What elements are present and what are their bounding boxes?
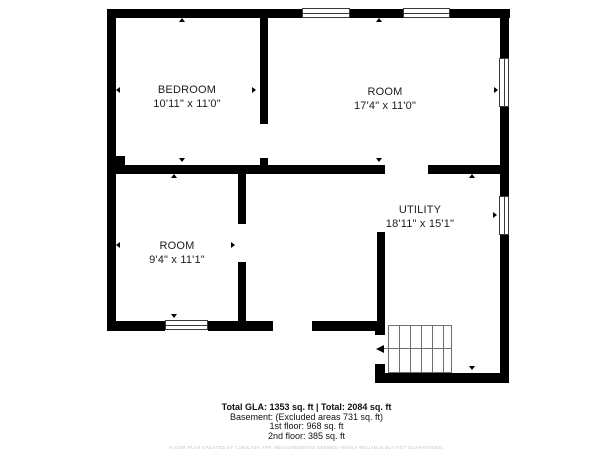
wall-stair-stub-bottom [375,364,385,383]
room-dimensions: 10'11" x 11'0" [153,98,221,112]
measure-arrow-icon [179,158,185,162]
room-label-utility: UTILITY 18'11" x 15'1" [386,204,454,231]
room-label-room-upper: ROOM 17'4" x 11'0" [354,86,416,113]
window-bottom-1 [165,320,208,330]
wall-room3-right-lower [238,262,246,321]
room-name: UTILITY [386,204,454,218]
wall-middle-notch [116,156,125,166]
staircase-midline [383,348,452,349]
wall-stair-stub-top [375,331,385,335]
room-dimensions: 17'4" x 11'0" [354,100,416,114]
room-name: BEDROOM [153,84,221,98]
measure-arrow-icon [171,314,177,318]
wall-room3-right-upper [238,174,246,224]
measure-arrow-icon [116,87,120,93]
measure-arrow-icon [252,87,256,93]
room-label-bedroom: BEDROOM 10'11" x 11'0" [153,84,221,111]
measure-arrow-icon [376,18,382,22]
window-top-1 [302,8,350,18]
room-name: ROOM [354,86,416,100]
wall-utility-interior [377,232,385,323]
measure-arrow-icon [469,366,475,370]
wall-bottom-left-a [107,321,165,331]
wall-bedroom-right [260,18,268,124]
wall-bottom-right [375,373,509,383]
measure-arrow-icon [493,212,497,218]
staircase [388,325,452,373]
measure-arrow-icon [376,158,382,162]
measure-arrow-icon [469,174,475,178]
window-right-2 [499,196,509,235]
staircase-direction-arrow-icon [376,345,384,353]
wall-bedroom-right-cap [260,158,268,166]
wall-middle-right [428,165,509,174]
disclaimer-text: FLOOR PLAN CREATED BY CUBICASA APP. MEAS… [0,445,613,450]
window-right-1 [499,58,509,107]
floor-plan-canvas: BEDROOM 10'11" x 11'0" ROOM 17'4" x 11'0… [0,0,613,460]
area-summary: Total GLA: 1353 sq. ft | Total: 2084 sq.… [0,403,613,441]
wall-middle-left [107,165,385,174]
wall-bottom-left-c [312,321,385,331]
room-label-room-lower: ROOM 9'4" x 11'1" [149,240,205,267]
room-name: ROOM [149,240,205,254]
measure-arrow-icon [231,242,235,248]
window-top-2 [403,8,450,18]
measure-arrow-icon [494,87,498,93]
room-dimensions: 18'11" x 15'1" [386,218,454,232]
measure-arrow-icon [171,174,177,178]
second-floor-line: 2nd floor: 385 sq. ft [0,432,613,442]
wall-bottom-left-b [208,321,273,331]
measure-arrow-icon [179,18,185,22]
measure-arrow-icon [116,242,120,248]
room-dimensions: 9'4" x 11'1" [149,254,205,268]
